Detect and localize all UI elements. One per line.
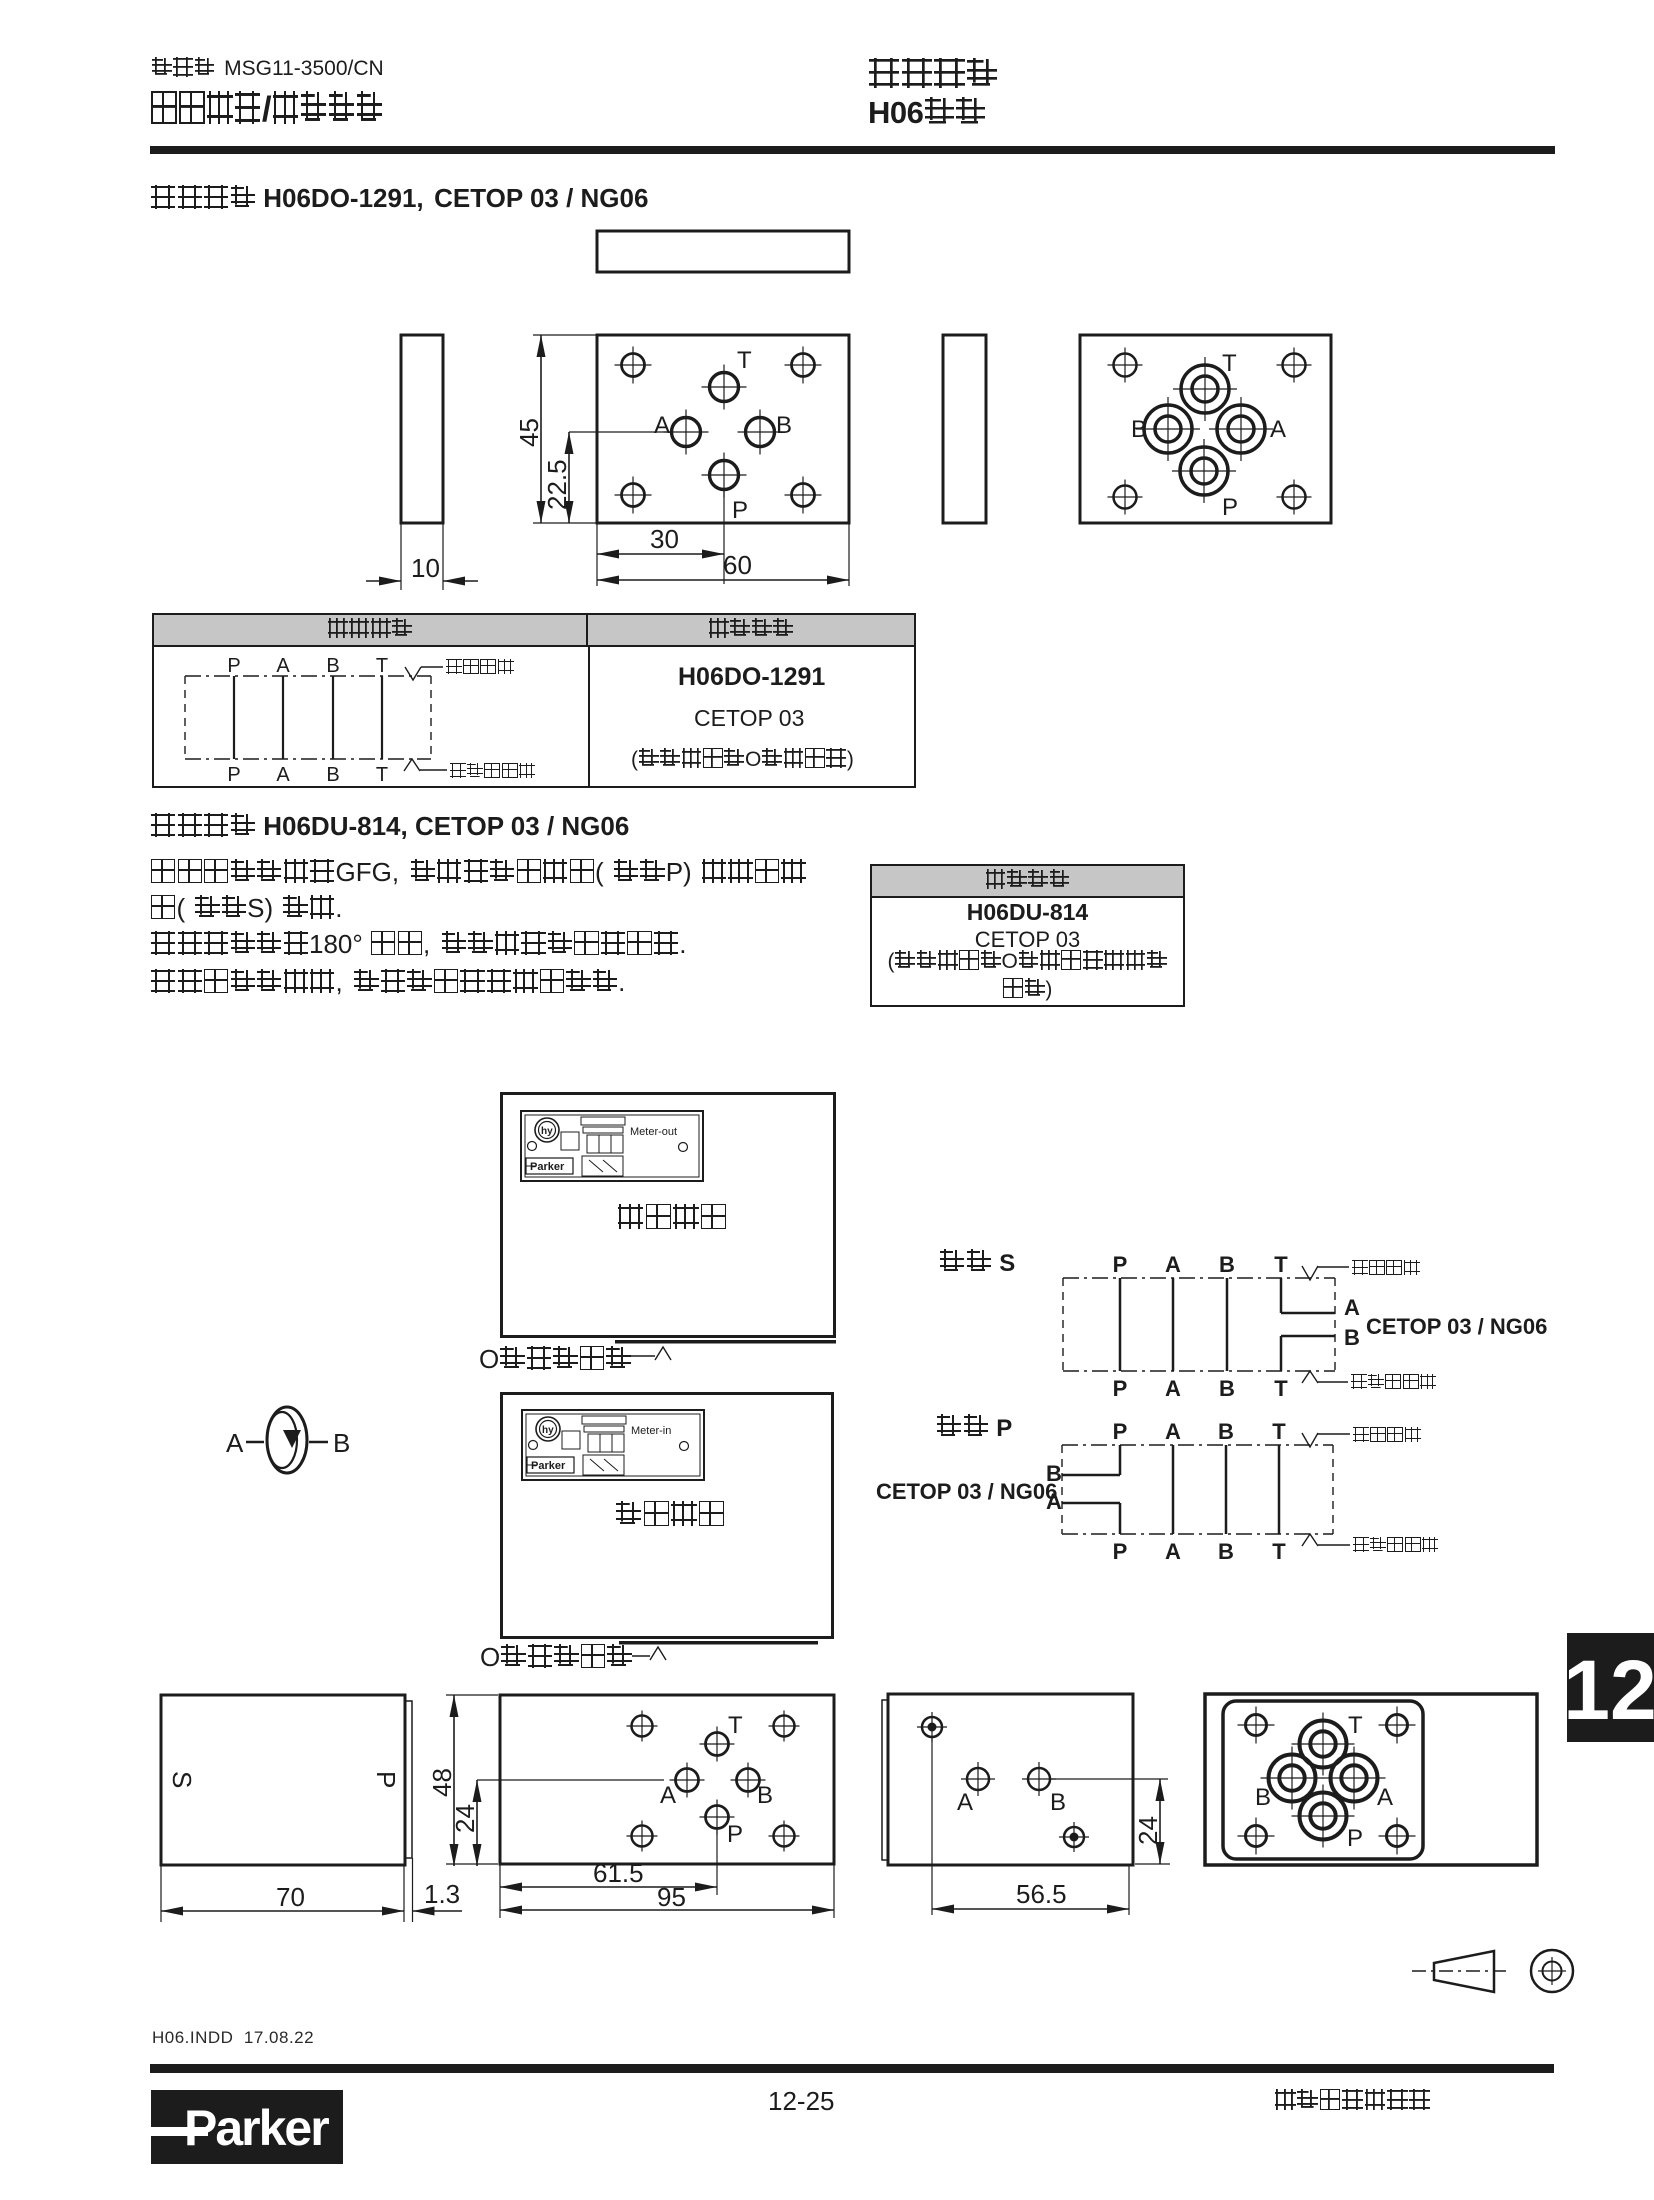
- svg-text:P: P: [1347, 1825, 1363, 1852]
- svg-text:S: S: [167, 1771, 197, 1788]
- svg-text:A: A: [276, 655, 290, 677]
- svg-text:T: T: [737, 347, 752, 374]
- svg-text:A: A: [1165, 1419, 1181, 1444]
- svg-text:P: P: [1113, 1419, 1128, 1444]
- svg-text:56.5: 56.5: [1016, 1879, 1067, 1909]
- svg-text:P: P: [227, 655, 240, 677]
- svg-text:48: 48: [427, 1768, 457, 1797]
- svg-text:B: B: [1131, 416, 1147, 443]
- svg-text:hy: hy: [541, 1126, 553, 1137]
- svg-text:Parker: Parker: [531, 1460, 566, 1472]
- svg-text:A: A: [1165, 1539, 1181, 1564]
- svg-text:A: A: [1344, 1295, 1360, 1320]
- svg-text:B: B: [1344, 1325, 1360, 1350]
- svg-text:P: P: [227, 764, 240, 786]
- svg-text:A: A: [660, 1782, 676, 1809]
- svg-text:T: T: [728, 1712, 743, 1739]
- svg-text:B: B: [1255, 1784, 1271, 1811]
- svg-text:B: B: [1050, 1789, 1066, 1816]
- svg-text:T: T: [1272, 1539, 1286, 1564]
- svg-text:B: B: [326, 764, 339, 786]
- svg-text:P: P: [727, 1821, 743, 1848]
- svg-text:A: A: [1377, 1784, 1393, 1811]
- svg-text:1.3: 1.3: [424, 1879, 460, 1909]
- svg-text:T: T: [1272, 1419, 1286, 1444]
- svg-text:hy: hy: [542, 1425, 554, 1436]
- svg-text:Meter-in: Meter-in: [631, 1425, 671, 1437]
- svg-text:45: 45: [514, 418, 544, 447]
- svg-text:B: B: [333, 1428, 350, 1458]
- svg-text:T: T: [1348, 1712, 1363, 1739]
- svg-text:T: T: [1222, 350, 1237, 377]
- svg-text:10: 10: [411, 553, 440, 583]
- svg-text:B: B: [1218, 1419, 1234, 1444]
- svg-text:A: A: [226, 1428, 244, 1458]
- svg-text:T: T: [376, 655, 388, 677]
- svg-text:B: B: [1046, 1461, 1062, 1486]
- svg-text:B: B: [757, 1782, 773, 1809]
- svg-text:A: A: [1046, 1489, 1062, 1514]
- svg-text:A: A: [1270, 416, 1286, 443]
- svg-text:T: T: [1274, 1376, 1288, 1401]
- svg-text:P: P: [1113, 1376, 1128, 1401]
- svg-text:P: P: [1222, 494, 1238, 521]
- svg-text:A: A: [1165, 1252, 1181, 1277]
- svg-text:70: 70: [276, 1882, 305, 1912]
- svg-text:B: B: [1218, 1539, 1234, 1564]
- svg-text:24: 24: [450, 1804, 480, 1833]
- svg-text:P: P: [1113, 1252, 1128, 1277]
- svg-text:61.5: 61.5: [593, 1858, 644, 1888]
- svg-text:12: 12: [1563, 1643, 1654, 1737]
- svg-text:P: P: [1113, 1539, 1128, 1564]
- svg-text:B: B: [1219, 1252, 1235, 1277]
- svg-text:A: A: [276, 764, 290, 786]
- svg-text:B: B: [776, 412, 792, 439]
- svg-text:22.5: 22.5: [542, 459, 572, 510]
- svg-text:T: T: [376, 764, 388, 786]
- svg-text:Meter-out: Meter-out: [630, 1126, 677, 1138]
- svg-text:A: A: [957, 1789, 973, 1816]
- svg-text:95: 95: [657, 1882, 686, 1912]
- svg-text:Parker: Parker: [530, 1161, 565, 1173]
- svg-text:30: 30: [650, 524, 679, 554]
- svg-text:A: A: [654, 412, 670, 439]
- svg-text:T: T: [1274, 1252, 1288, 1277]
- svg-text:P: P: [732, 497, 748, 524]
- svg-text:24: 24: [1133, 1816, 1163, 1845]
- svg-text:A: A: [1165, 1376, 1181, 1401]
- svg-text:P: P: [371, 1771, 401, 1788]
- svg-text:B: B: [1219, 1376, 1235, 1401]
- svg-text:60: 60: [723, 550, 752, 580]
- svg-text:B: B: [326, 655, 339, 677]
